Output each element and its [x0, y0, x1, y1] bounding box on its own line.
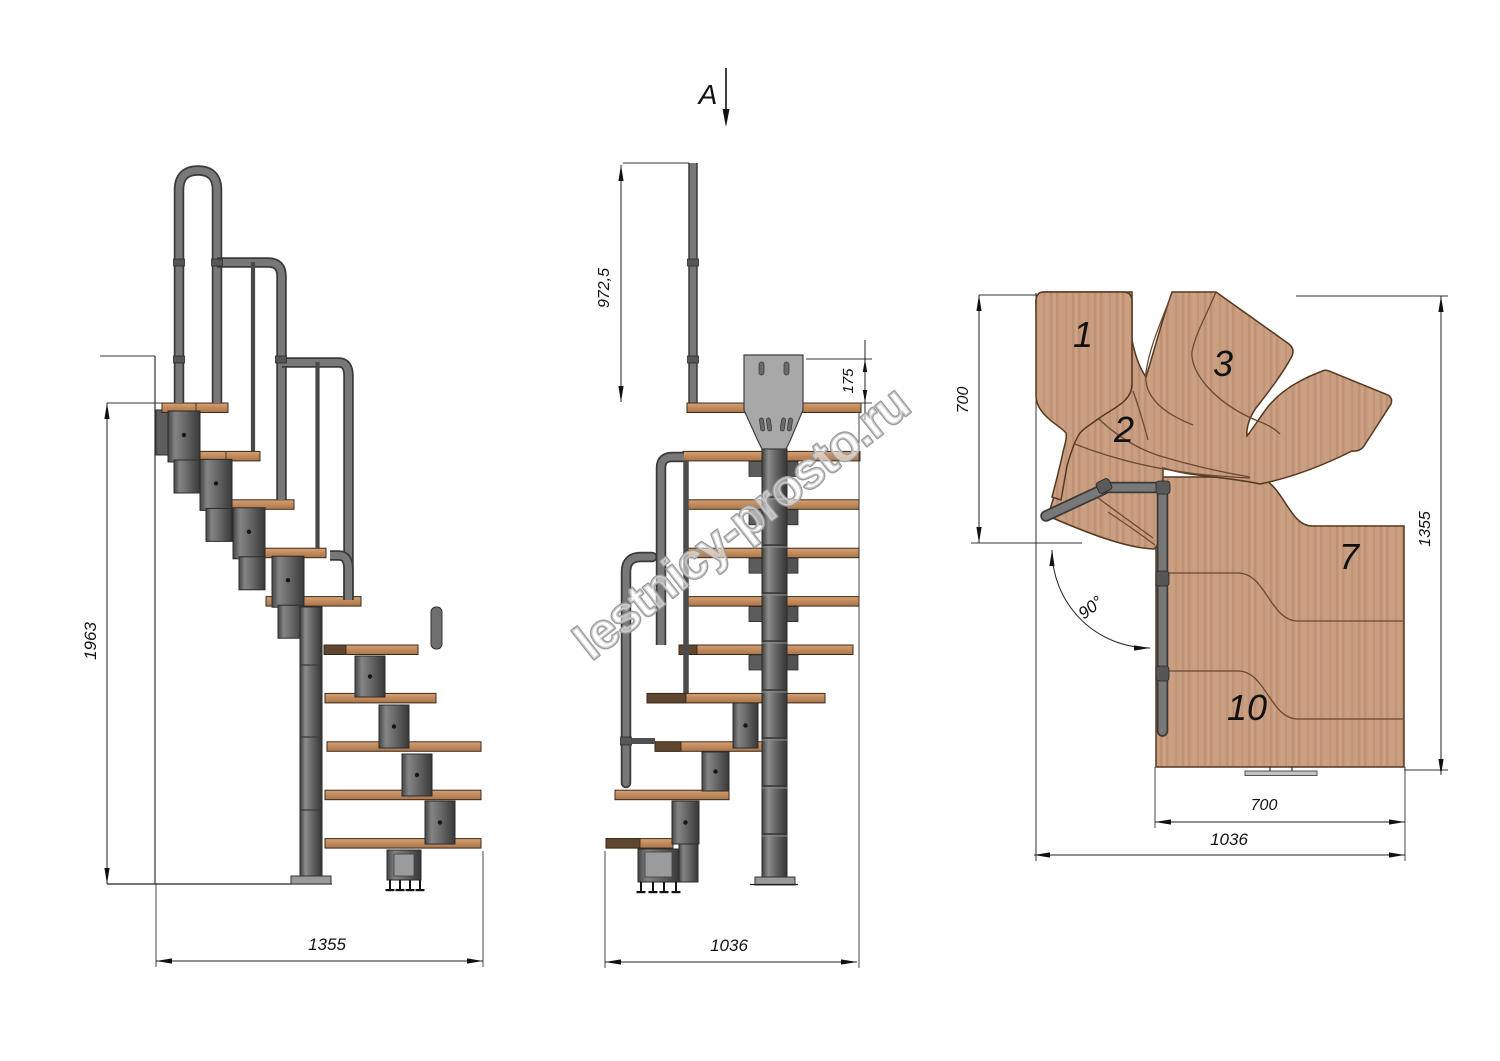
svg-text:700: 700 [1251, 797, 1278, 814]
svg-text:10: 10 [1227, 687, 1267, 728]
svg-text:1036: 1036 [710, 936, 748, 955]
svg-text:1355: 1355 [1417, 511, 1434, 547]
svg-text:1355: 1355 [308, 935, 346, 954]
svg-text:3: 3 [1213, 343, 1233, 384]
svg-text:A: A [697, 79, 718, 110]
svg-text:1963: 1963 [81, 622, 100, 660]
svg-text:2: 2 [1113, 409, 1134, 450]
svg-text:1036: 1036 [1210, 830, 1248, 849]
svg-text:972,5: 972,5 [596, 268, 613, 308]
svg-text:1: 1 [1073, 314, 1093, 355]
svg-text:175: 175 [840, 368, 857, 394]
svg-text:7: 7 [1339, 536, 1361, 577]
svg-text:700: 700 [955, 387, 972, 414]
